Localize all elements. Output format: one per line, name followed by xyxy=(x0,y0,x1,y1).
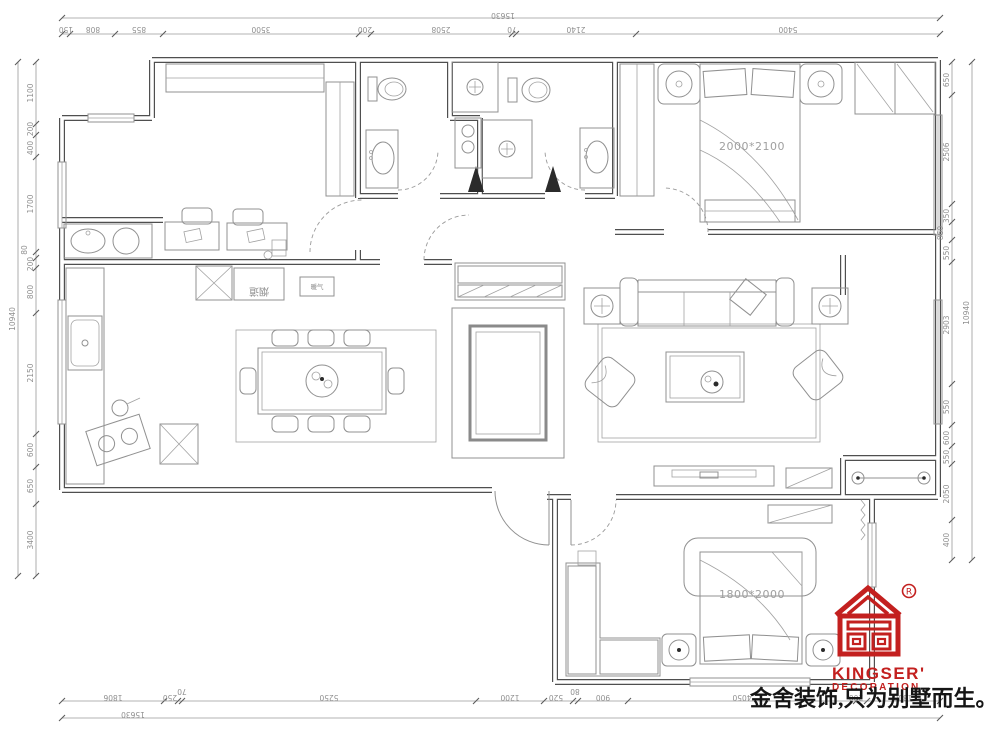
svg-text:2050: 2050 xyxy=(942,484,951,503)
svg-text:650: 650 xyxy=(942,73,951,88)
desk-area xyxy=(165,208,287,259)
kingser-logo: R KINGSER' DECORATION xyxy=(832,583,942,694)
svg-text:250: 250 xyxy=(163,693,178,702)
flue-label: 烟道 xyxy=(249,285,269,298)
svg-text:400: 400 xyxy=(26,141,35,156)
svg-text:80: 80 xyxy=(20,245,29,255)
svg-text:3500: 3500 xyxy=(251,25,270,34)
dim-top-total: 15630 xyxy=(491,11,515,20)
svg-text:2508: 2508 xyxy=(431,25,450,34)
svg-text:800: 800 xyxy=(26,285,35,300)
radiator-label: 暖气 xyxy=(311,282,325,291)
svg-text:5250: 5250 xyxy=(319,693,338,702)
svg-text:2506: 2506 xyxy=(942,142,951,161)
patio-void xyxy=(452,308,564,458)
floor-plan-canvas: 2000*2100 1800*2000 烟道 暖气 15630 150 808 … xyxy=(0,0,1000,739)
svg-text:2903: 2903 xyxy=(942,315,951,334)
svg-text:5400: 5400 xyxy=(778,25,797,34)
svg-text:900: 900 xyxy=(596,693,611,702)
bath-a-door-arc xyxy=(398,150,438,190)
svg-text:400: 400 xyxy=(942,533,951,548)
svg-text:600: 600 xyxy=(942,431,951,446)
svg-text:R: R xyxy=(906,588,912,598)
svg-text:2140: 2140 xyxy=(566,25,585,34)
svg-text:550: 550 xyxy=(942,246,951,261)
svg-text:808: 808 xyxy=(86,25,101,34)
svg-text:1806: 1806 xyxy=(103,693,122,702)
brand-name: KINGSER' xyxy=(832,665,942,682)
bath-b-door-leaf xyxy=(545,166,561,192)
master-bedroom xyxy=(658,62,935,222)
laundry-niche xyxy=(852,472,930,484)
svg-text:550: 550 xyxy=(942,400,951,415)
dim-bottom-total: 15630 xyxy=(121,710,145,719)
svg-text:70: 70 xyxy=(507,25,517,34)
second-bedroom xyxy=(566,500,865,676)
living-room xyxy=(582,278,848,488)
window xyxy=(868,523,876,587)
svg-text:4050: 4050 xyxy=(732,693,751,702)
svg-text:650: 650 xyxy=(26,479,35,494)
svg-text:350: 350 xyxy=(942,209,951,224)
svg-text:70: 70 xyxy=(177,687,187,696)
bedroom2-door xyxy=(571,500,616,545)
kitchen xyxy=(66,266,334,484)
svg-text:200: 200 xyxy=(26,257,35,272)
svg-text:550: 550 xyxy=(942,450,951,465)
cloakroom-wardrobe xyxy=(166,64,354,196)
svg-text:1100: 1100 xyxy=(26,83,35,102)
svg-text:1700: 1700 xyxy=(26,194,35,213)
svg-text:520: 520 xyxy=(549,693,564,702)
windows xyxy=(58,114,942,686)
dim-left-total: 10940 xyxy=(8,307,17,331)
svg-text:855: 855 xyxy=(132,25,147,34)
kingser-logo-icon: R xyxy=(832,583,918,661)
hall-console xyxy=(455,263,565,300)
master-door-arc xyxy=(664,188,708,232)
svg-text:600: 600 xyxy=(26,443,35,458)
window xyxy=(58,300,66,424)
svg-text:200: 200 xyxy=(26,122,35,137)
svg-text:80: 80 xyxy=(570,687,580,696)
svg-text:200: 200 xyxy=(358,25,373,34)
svg-text:1200: 1200 xyxy=(500,693,519,702)
dim-right-total: 10940 xyxy=(962,301,971,325)
master-bed-size-label: 2000*2100 xyxy=(719,140,785,153)
hall-door-arc xyxy=(424,215,469,260)
furniture xyxy=(64,62,935,676)
svg-text:860: 860 xyxy=(936,226,945,241)
dining-room xyxy=(236,330,436,442)
svg-text:2150: 2150 xyxy=(26,363,35,382)
powder-counter xyxy=(64,224,152,258)
cloakroom-door-arc xyxy=(310,200,362,252)
window xyxy=(88,114,134,122)
bathroom-b xyxy=(482,64,654,196)
svg-text:3400: 3400 xyxy=(26,530,35,549)
entry-door xyxy=(495,491,549,545)
brand-slogan: 金舍装饰,只为别墅而生。 xyxy=(750,681,1000,713)
svg-text:150: 150 xyxy=(59,25,74,34)
second-bed-size-label: 1800*2000 xyxy=(719,588,785,601)
